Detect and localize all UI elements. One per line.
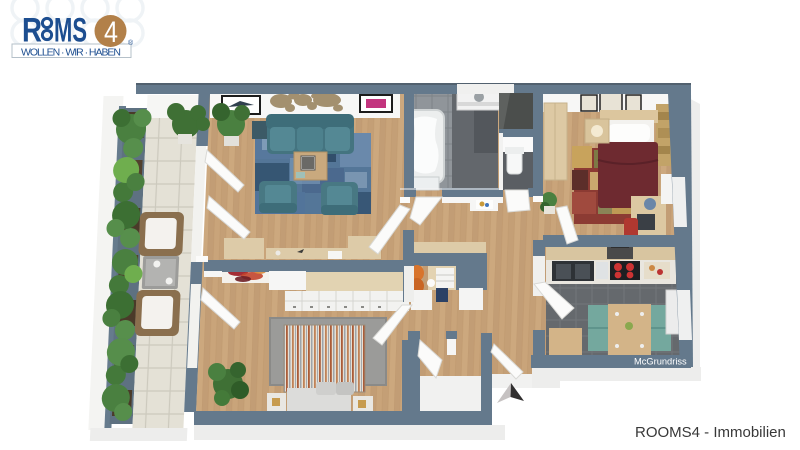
svg-text:®: ® <box>128 39 134 47</box>
svg-text:McGrundriss: McGrundriss <box>634 357 687 367</box>
svg-text:WOLLEN · WIR · HABEN: WOLLEN · WIR · HABEN <box>21 46 121 58</box>
svg-text:MS: MS <box>54 12 87 50</box>
svg-text:ROOMS4 - Immobilien: ROOMS4 - Immobilien <box>635 424 786 441</box>
svg-text:R: R <box>22 12 42 50</box>
svg-text:4: 4 <box>104 16 118 49</box>
